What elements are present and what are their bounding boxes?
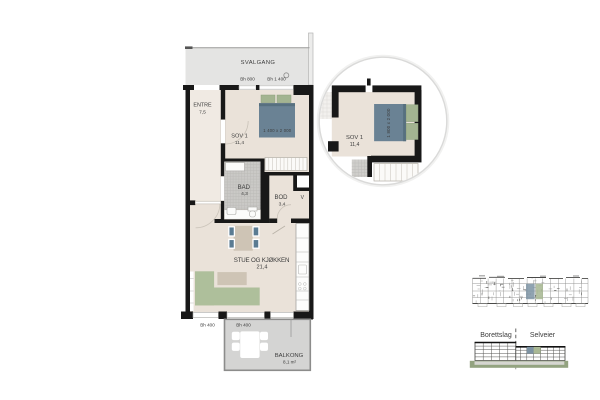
svg-text:SVALGANG: SVALGANG	[241, 60, 276, 66]
svg-text:Bh 400: Bh 400	[236, 323, 251, 328]
svg-text:11,4: 11,4	[350, 142, 360, 148]
svg-text:Bh 1 400: Bh 1 400	[267, 77, 286, 82]
svg-text:3,4: 3,4	[279, 202, 286, 208]
svg-text:21,4: 21,4	[257, 264, 268, 270]
svg-text:Selveier: Selveier	[530, 332, 556, 339]
svg-text:BOD: BOD	[274, 195, 288, 201]
svg-text:Borettslag: Borettslag	[480, 332, 512, 339]
svg-text:ENTRE: ENTRE	[193, 103, 212, 109]
svg-text:1 800 x 2 000: 1 800 x 2 000	[386, 108, 391, 138]
svg-text:11,4: 11,4	[235, 140, 244, 146]
svg-text:SOV 1: SOV 1	[346, 135, 363, 141]
svg-text:8,1 m²: 8,1 m²	[283, 360, 296, 365]
svg-text:7,5: 7,5	[199, 110, 206, 116]
svg-text:1 400 x 2 000: 1 400 x 2 000	[263, 128, 291, 133]
svg-text:SOV 1: SOV 1	[231, 134, 247, 140]
svg-text:BAD: BAD	[238, 185, 251, 191]
svg-text:BALKONG: BALKONG	[275, 353, 304, 359]
svg-text:STUE OG KJØKKEN: STUE OG KJØKKEN	[234, 257, 289, 264]
svg-text:Bh 400: Bh 400	[200, 323, 215, 328]
svg-text:4,3: 4,3	[241, 191, 248, 197]
svg-text:Bh 800: Bh 800	[240, 77, 255, 82]
